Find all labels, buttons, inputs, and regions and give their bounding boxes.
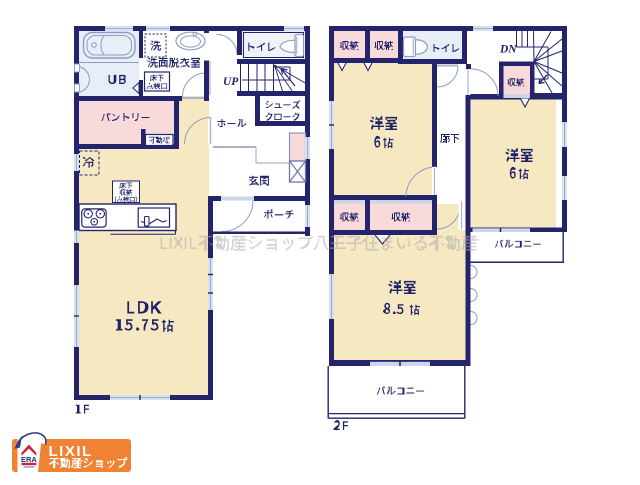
svg-text:UP: UP (223, 76, 239, 88)
svg-text:DN: DN (499, 44, 517, 56)
svg-text:LIXIL: LIXIL (49, 443, 93, 460)
svg-text:ERA: ERA (21, 455, 37, 464)
